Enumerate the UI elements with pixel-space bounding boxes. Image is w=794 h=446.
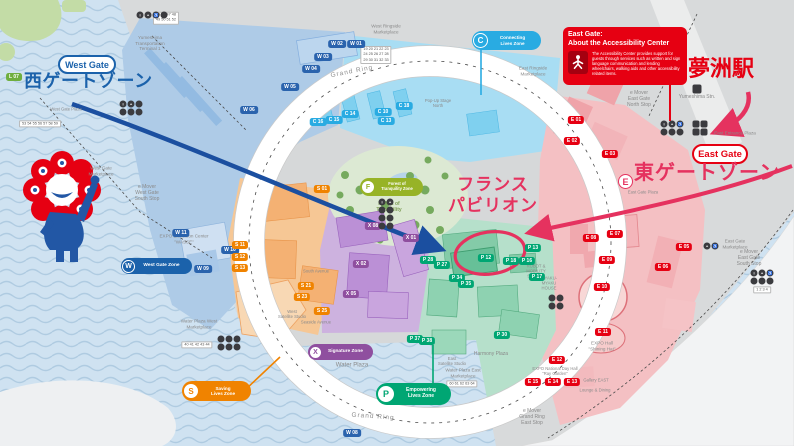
facility-icon [387,207,394,214]
facility-icon [701,129,708,136]
info-icon: i [379,199,386,206]
facility-icon-cluster [693,121,708,136]
pavilion-marker: P 18 [503,257,519,265]
water-plaza-east-marketplace-label: Water Plaza East Marketplace [445,368,480,379]
pavilion-marker: S 23 [294,293,310,301]
facility-icon [693,121,700,128]
accessibility-card-body: The Accessibility Center provides suppor… [592,51,682,77]
first-aid-icon: + [128,101,135,108]
east-ringside-marketplace-label: East Ringside Marketplace [519,66,547,77]
expo-hall-label: EXPO Hall "Shining Hat" [588,341,615,352]
yumeshima-stn-label: Yumeshima Stn. [679,94,715,100]
accessibility-icon: ♿ [153,12,160,19]
first-aid-icon: + [669,121,676,128]
facility-icon [767,278,774,285]
pavilion-marker: W 06 [240,106,258,114]
pavilion-marker: S 01 [314,185,330,193]
east-zone-callout: 東ゲートゾーン [634,161,780,186]
pavilion-marker: S 13 [232,264,248,272]
facility-icon [218,336,225,343]
south-avenue-label: South Avenue [303,268,329,273]
pavilion-marker: S 11 [232,241,248,249]
facility-icon [128,109,135,116]
pavilion-marker: S 21 [298,282,314,290]
pavilion-marker: W 11 [172,229,189,237]
pavilion-marker: P 28 [420,256,436,264]
west-satellite-studio-label: West Satellite Studio [278,309,306,319]
pavilion-marker: P 38 [419,337,435,345]
pavilion-marker: E 08 [583,234,599,242]
emover-east-south-label: e Mover East Gate South Stop [737,249,762,267]
pavilion-marker: E 13 [564,378,580,386]
pavilion-marker: W 04 [302,65,320,73]
zone-letter: P [377,385,395,403]
pavilion-marker: E 06 [655,263,671,271]
zone-pill-connecting: C Connecting Lives Zone [472,31,541,50]
facility-icon [557,303,564,310]
train-station-icon [693,85,702,94]
zone-pill-signature: X Signature Zone [308,344,373,360]
facility-icon-cluster: + ♿ [704,243,719,250]
popup-stage-north-label: Pop-Up Stage North [425,98,451,108]
west-zone-callout: 西ゲートゾーン [24,70,153,93]
national-day-hall-label: EXPO National Day Hall "Ray Garden" [532,366,577,376]
station-callout: 夢洲駅 [688,55,754,83]
zone-pill-west-gate: W West Gate Zone [121,258,192,274]
facility-icon-cluster: i + ♿ [661,121,684,136]
zone-pill-empowering: P Empowering Lives Zone [376,383,451,405]
west-gate-marketplace-label: West Gate Marketplace [88,166,113,177]
zone-letter: F [361,180,375,194]
pavilion-marker: E 10 [594,283,610,291]
accessibility-icon: ♿ [712,243,719,250]
pavilion-marker: W 09 [194,265,212,273]
stop-numbers: 53 54 55 56 57 58 59 [19,120,61,127]
accessibility-card-title-1: East Gate: [568,31,682,40]
facility-icon-cluster: i + ♿ [137,12,168,19]
pavilion-marker: L 07 [6,73,22,81]
pavilion-marker: E 03 [602,150,618,158]
harmony-plaza-label: Harmony Plaza [474,351,508,357]
accessibility-card: East Gate: About the Accessibility Cente… [563,27,687,85]
pavilion-marker: E 11 [595,328,611,336]
facility-icon [161,12,168,19]
emover-grandring-east-label: e Mover Grand Ring East Stop [519,408,545,426]
accessibility-icon: ♿ [677,121,684,128]
pavilion-marker: P 27 [434,261,450,269]
pavilion-marker: C 18 [396,102,413,110]
facility-icon [379,207,386,214]
first-aid-icon: + [387,199,394,206]
east-satellite-studio-label: East Satellite Studio [438,356,466,366]
gallery-east-label: Gallery EAST [583,377,608,382]
east-gate-marketplace-label: East Gate Marketplace [722,239,747,250]
first-aid-icon: + [145,12,152,19]
pavilion-marker: W 05 [281,83,299,91]
pavilion-marker: C 10 [375,108,392,116]
facility-icon [751,278,758,285]
facility-icon [677,129,684,136]
facility-icon [549,295,556,302]
stop-numbers: 60 61 62 63 64 [446,380,477,387]
facility-icon [379,223,386,230]
pavilion-marker: E 09 [599,256,615,264]
france-pavilion-callout: フランス パビリオン [448,174,538,217]
seaside-avenue-label: Seaside Avenue [301,319,331,324]
facility-icon [379,215,386,222]
zone-pill-saving: S Saving Lives Zone [182,381,251,401]
facility-icon [693,129,700,136]
pavilion-marker: S 25 [314,307,330,315]
facility-icon [218,344,225,351]
pavilion-marker: P 35 [458,280,474,288]
facility-icon [669,129,676,136]
pavilion-marker: E 01 [568,116,584,124]
first-aid-icon: + [759,270,766,277]
facility-icon [701,121,708,128]
zone-label: Forest of Tranquility Zone [375,182,419,191]
pavilion-marker: P 16 [519,257,535,265]
facility-icon [120,109,127,116]
zone-letter: S [183,383,199,399]
pavilion-marker: E 14 [545,378,561,386]
facility-icon-cluster: i + ♿ [751,270,774,285]
pavilion-marker: E 15 [525,378,541,386]
emover-east-north-label: e Mover East Gate North Stop [627,90,651,108]
zone-letter: C [473,33,488,48]
info-icon: i [661,121,668,128]
info-icon: i [751,270,758,277]
east-gate-plaza-label: East Gate Plaza [628,189,658,194]
pavilion-marker: C 14 [342,110,359,118]
facility-icon-cluster: i + [120,101,143,116]
east-entrance-plaza-label: East Entrance Plaza [714,130,756,136]
emover-west-south-label: e Mover West Gate South Stop [135,184,160,202]
pavilion-marker: X 01 [403,234,419,242]
zone-label: Saving Lives Zone [199,386,247,397]
first-aid-icon: + [704,243,711,250]
stop-numbers: 19 20 21 22 23 24 25 26 27 28 29 30 31 3… [360,46,391,64]
facility-icon [226,344,233,351]
west-ringside-marketplace-label: West Ringside Marketplace [371,24,401,35]
pavilion-marker: C 15 [326,116,343,124]
facility-icon [226,336,233,343]
pavilion-marker: P 13 [525,244,541,252]
facility-icon [661,129,668,136]
facility-icon [234,344,241,351]
zone-label: Connecting Lives Zone [488,35,537,46]
facility-icon [557,295,564,302]
facility-icon [387,215,394,222]
pavilion-marker: S 12 [232,253,248,261]
pavilion-marker: W 02 [328,40,346,48]
pavilion-marker: W 08 [343,429,361,437]
east-zone-letter-badge: E [618,174,633,189]
water-plaza-label: Water Plaza [336,362,368,369]
facility-icon [387,223,394,230]
zone-label: Empowering Lives Zone [395,388,447,400]
pavilion-marker: E 05 [676,243,692,251]
zone-pill-forest: F Forest of Tranquility Zone [360,178,423,196]
accessibility-person-icon [568,51,588,74]
facility-icon [136,109,143,116]
facility-icon [549,303,556,310]
pavilion-marker: P 30 [494,331,510,339]
pavilion-marker: X 05 [343,290,359,298]
facility-icon-cluster [549,295,564,310]
lounge-dining-label: Lounge & Dining [580,387,611,392]
accessibility-icon: ♿ [767,270,774,277]
station-icon [693,85,702,94]
transportation-terminal-label: Yumeshima Transportation Terminal 1 [135,35,164,52]
pavilion-marker: W 03 [314,53,332,61]
expo-site-map: Grand Ring Grand Ring Water Plaza Harmon… [0,0,794,446]
west-gate-plaza-label: West Gate Plaza [50,106,81,111]
pavilion-marker: C 16 [310,118,327,126]
info-icon: i [137,12,144,19]
pavilion-marker: P 17 [529,273,545,281]
pavilion-marker: E 12 [549,356,565,364]
pavilion-marker: E 07 [607,230,623,238]
facility-icon-cluster: i + [379,199,394,230]
zone-label: West Gate Zone [135,263,188,269]
facility-icon [234,336,241,343]
stop-numbers: 1 2 3 4 [753,286,771,293]
accessibility-card-title-2: About the Accessibility Center [568,40,682,49]
stop-numbers: 40 41 42 43 44 [181,341,212,348]
info-icon: i [120,101,127,108]
zone-label: Signature Zone [322,349,369,355]
pavilion-marker: W 01 [347,40,365,48]
zone-letter: W [122,260,135,273]
facility-icon [759,278,766,285]
pavilion-marker: C 13 [378,117,395,125]
facility-icon [136,101,143,108]
zone-letter: X [309,346,322,359]
france-pavilion-marker: P 12 [478,254,494,262]
facility-icon-cluster [218,336,241,351]
water-plaza-west-marketplace-label: Water Plaza West Marketplace [181,319,218,330]
pavilion-marker: E 02 [564,137,580,145]
pavilion-marker: X 02 [353,260,369,268]
